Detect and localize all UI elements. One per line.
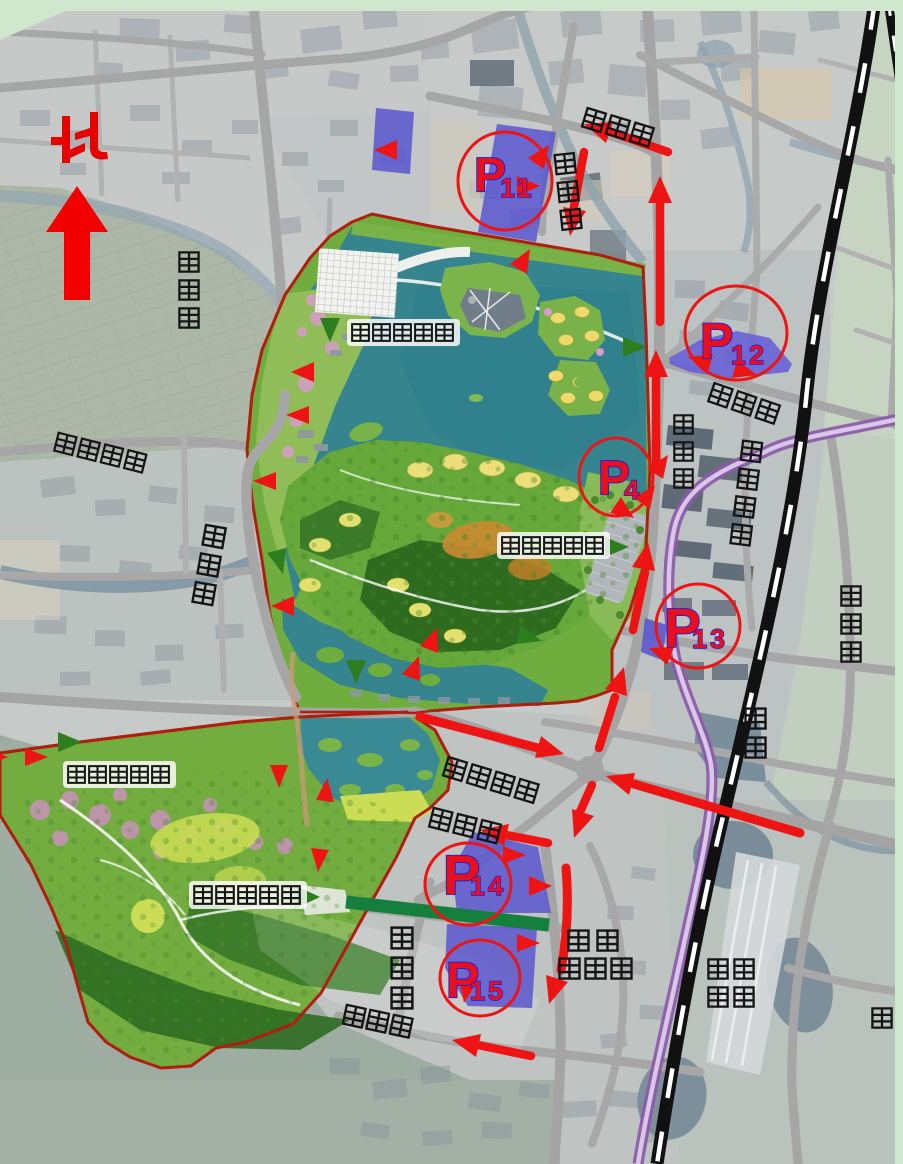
svg-text:15: 15 <box>470 976 506 1006</box>
svg-text:14: 14 <box>470 871 506 901</box>
svg-text:P: P <box>700 313 734 369</box>
svg-text:12: 12 <box>731 340 767 370</box>
svg-text:13: 13 <box>692 624 728 654</box>
svg-text:4: 4 <box>624 475 642 505</box>
svg-text:11: 11 <box>500 173 535 203</box>
